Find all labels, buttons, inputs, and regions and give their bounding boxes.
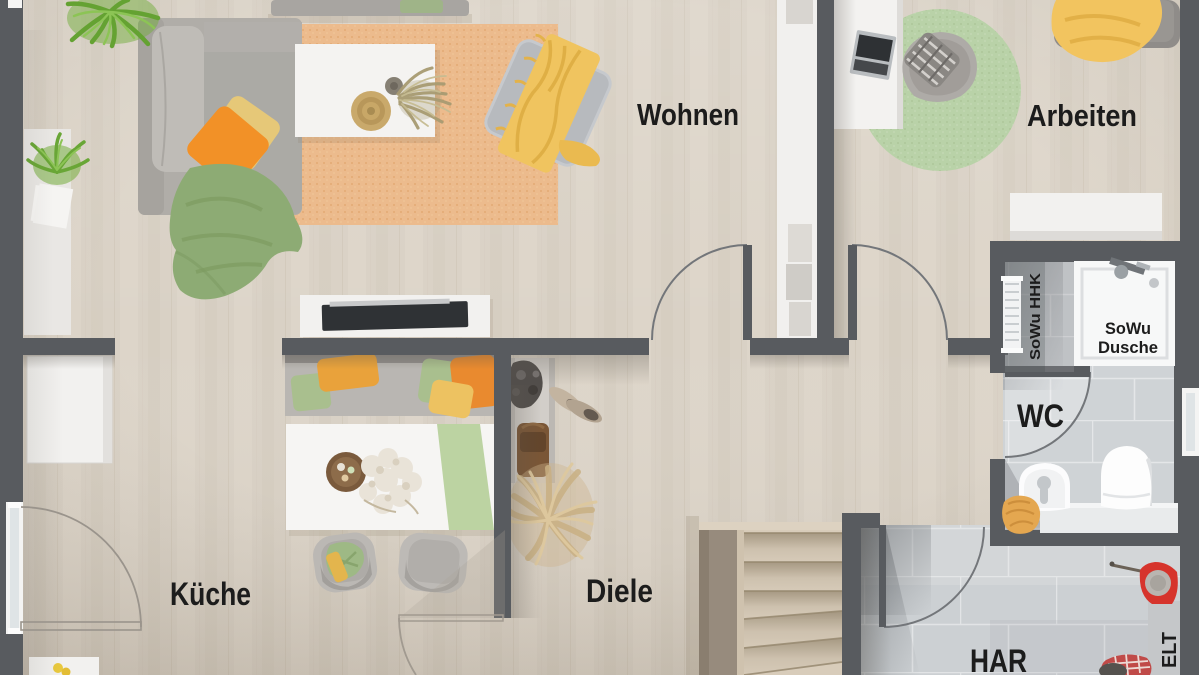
svg-text:ELT: ELT bbox=[1159, 632, 1181, 668]
svg-text:HAR: HAR bbox=[970, 643, 1027, 675]
svg-text:Diele: Diele bbox=[586, 573, 653, 609]
svg-text:WC: WC bbox=[1017, 398, 1064, 434]
svg-text:Arbeiten: Arbeiten bbox=[1027, 98, 1137, 133]
svg-text:SoWu HHK: SoWu HHK bbox=[1027, 273, 1044, 360]
svg-text:Küche: Küche bbox=[170, 576, 251, 612]
svg-text:SoWu: SoWu bbox=[1105, 319, 1151, 338]
svg-text:Wohnen: Wohnen bbox=[637, 97, 739, 132]
svg-text:Dusche: Dusche bbox=[1098, 338, 1158, 357]
